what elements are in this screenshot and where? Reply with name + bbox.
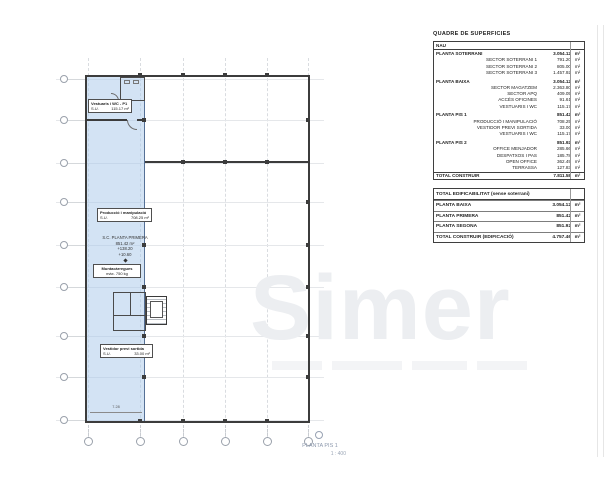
column-marker xyxy=(181,419,185,423)
row-value: 851.42 xyxy=(542,214,571,219)
wc-fixture xyxy=(133,80,139,84)
grid-leader xyxy=(88,425,89,436)
grid-leader xyxy=(68,336,85,337)
grid-leader xyxy=(68,420,85,421)
room-label-vestidor: Vestidor previ sortida S.U. 33.00 m² xyxy=(100,344,153,358)
grid-leader xyxy=(267,425,268,436)
room-label-area: 115.17 m² xyxy=(111,106,129,111)
grid-leader xyxy=(68,245,85,246)
north-symbol-icon xyxy=(315,431,323,439)
column-marker xyxy=(265,419,269,423)
table-unit-rule xyxy=(570,189,571,242)
room-label-produccio: Producció i manipulació S.U. 708.25 m² xyxy=(97,208,152,222)
table-row: PLANTA PRIMERA851.42m² xyxy=(434,211,584,222)
room-label-muntacarregues: Muntacàrregues màx. 750 kg xyxy=(93,264,141,278)
total-unit: m² xyxy=(571,172,584,180)
row-unit: m² xyxy=(571,70,584,76)
column-marker xyxy=(265,73,269,77)
column-marker xyxy=(306,200,310,204)
column-marker xyxy=(265,160,269,164)
table-body: PLANTA SOTERRANI3.054.12m² SECTOR SOTERR… xyxy=(434,50,584,180)
grid-leader xyxy=(68,202,85,203)
sheet-edge-line xyxy=(597,25,598,457)
row-value: 1.457.92 xyxy=(542,70,571,76)
grid-leader xyxy=(68,79,85,80)
watermark-tagline-block xyxy=(477,361,527,370)
room-label-tag: S.U. xyxy=(100,215,108,220)
room-label-note: màx. 750 kg xyxy=(96,271,138,276)
interior-wall xyxy=(145,161,310,163)
column-marker xyxy=(306,375,310,379)
room-label-tag: S.U. xyxy=(103,351,111,356)
sheet-edge-line xyxy=(603,25,604,457)
grid-leader xyxy=(140,425,141,436)
room-label-area: 33.00 m² xyxy=(134,351,150,356)
column-marker xyxy=(306,243,310,247)
grid-bubble xyxy=(60,198,68,206)
row-value: 851.92 xyxy=(542,224,571,229)
grid-bubble xyxy=(60,75,68,83)
grid-leader xyxy=(183,425,184,436)
row-label: VESTUARIS I WC xyxy=(434,131,542,137)
grid-bubble xyxy=(60,332,68,340)
row-unit: m² xyxy=(571,131,584,137)
total-unit: m² xyxy=(571,235,584,240)
column-marker xyxy=(223,419,227,423)
column-marker xyxy=(142,375,146,379)
row-unit: m² xyxy=(571,203,584,208)
room-label-tag: S.U. xyxy=(91,106,99,111)
grid-bubble xyxy=(60,159,68,167)
edificability-table: TOTAL EDIFICABILITAT (sense soterrani) P… xyxy=(433,188,585,243)
grid-bubble xyxy=(263,437,272,446)
grid-bubble xyxy=(60,116,68,124)
annotation-line: S.C. PLANTA PRIMERA xyxy=(93,235,157,241)
table-row: PLANTA SEGONA851.92m² xyxy=(434,221,584,232)
column-marker xyxy=(223,160,227,164)
column-marker xyxy=(142,334,146,338)
row-label: SECTOR SOTERRANI 3 xyxy=(434,70,542,76)
table-total-row: TOTAL CONSTRUIR7.811.58m² xyxy=(434,172,584,180)
row-value: 3.054.12 xyxy=(542,203,571,208)
surfaces-table-title: QUADRE DE SUPERFICIES xyxy=(433,31,511,37)
grid-leader xyxy=(68,120,85,121)
dimension-line xyxy=(90,412,142,413)
column-marker xyxy=(181,160,185,164)
table-group-header: NAU xyxy=(434,42,584,50)
grid-bubble xyxy=(179,437,188,446)
row-unit: m² xyxy=(571,214,584,219)
total-value: 7.811.58 xyxy=(542,172,571,180)
surfaces-table: NAU PLANTA SOTERRANI3.054.12m² SECTOR SO… xyxy=(433,41,585,180)
row-unit: m² xyxy=(571,104,584,110)
table-header: TOTAL EDIFICABILITAT (sense soterrani) xyxy=(434,189,584,200)
core-partition xyxy=(113,315,146,316)
grid-bubble xyxy=(84,437,93,446)
watermark-tagline-block xyxy=(412,361,467,370)
row-unit: m² xyxy=(571,224,584,229)
floor-area-annotation: S.C. PLANTA PRIMERA 851.42 m² +138.20 +1… xyxy=(93,235,157,257)
grid-leader xyxy=(68,377,85,378)
table-unit-rule xyxy=(570,42,571,179)
grid-bubble xyxy=(60,241,68,249)
column-marker xyxy=(138,419,142,423)
column-marker xyxy=(181,73,185,77)
grid-leader xyxy=(68,287,85,288)
dimension-text: 7.28 xyxy=(106,405,126,409)
column-marker xyxy=(223,73,227,77)
total-label: TOTAL CONSTRUIR xyxy=(434,172,542,180)
column-marker xyxy=(138,73,142,77)
row-label: PLANTA BAIXA xyxy=(434,203,542,208)
table-total-row: TOTAL CONSTRUIR (EDIFICACIÓ)4.757.46m² xyxy=(434,232,584,243)
row-label: VESTUARIS I WC xyxy=(434,104,542,110)
grid-leader xyxy=(225,425,226,436)
row-value: 115.17 xyxy=(542,104,571,110)
grid-bubble xyxy=(60,283,68,291)
table-row: VESTUARIS I WC115.17m² xyxy=(434,131,584,137)
table-row: VESTUARIS I WC115.17m² xyxy=(434,104,584,110)
grid-bubble xyxy=(60,373,68,381)
watermark-tagline-block xyxy=(332,361,402,370)
row-label: PLANTA SEGONA xyxy=(434,224,542,229)
interior-wall xyxy=(85,119,127,121)
column-marker xyxy=(306,118,310,122)
grid-bubble xyxy=(60,416,68,424)
annotation-line: +10.60 xyxy=(93,252,157,258)
room-label-vestuaris: Vestuaris i WC - P1 S.U. 115.17 m² xyxy=(88,99,132,113)
core-partition xyxy=(130,292,131,315)
room-label-area: 708.25 m² xyxy=(131,215,149,220)
grid-leader xyxy=(68,163,85,164)
total-label: TOTAL CONSTRUIR (EDIFICACIÓ) xyxy=(434,235,542,240)
elevator-shaft xyxy=(150,301,163,318)
drawing-sheet: Simer Vestuaris i WC - P1 S.U. xyxy=(0,0,611,480)
column-marker xyxy=(142,118,146,122)
row-value: 115.17 xyxy=(542,131,571,137)
row-label: PLANTA PRIMERA xyxy=(434,214,542,219)
plan-title: PLANTA PIS 1 xyxy=(288,443,352,450)
column-marker xyxy=(306,334,310,338)
grid-bubble xyxy=(136,437,145,446)
column-marker xyxy=(306,285,310,289)
column-marker xyxy=(142,285,146,289)
wc-fixture xyxy=(124,80,130,84)
plan-scale: 1 : 400 xyxy=(288,451,346,457)
grid-bubble xyxy=(221,437,230,446)
table-row: SECTOR SOTERRANI 31.457.92m² xyxy=(434,70,584,76)
grid-leader xyxy=(308,425,309,436)
table-row: PLANTA BAIXA3.054.12m² xyxy=(434,200,584,211)
total-value: 4.757.46 xyxy=(542,235,571,240)
